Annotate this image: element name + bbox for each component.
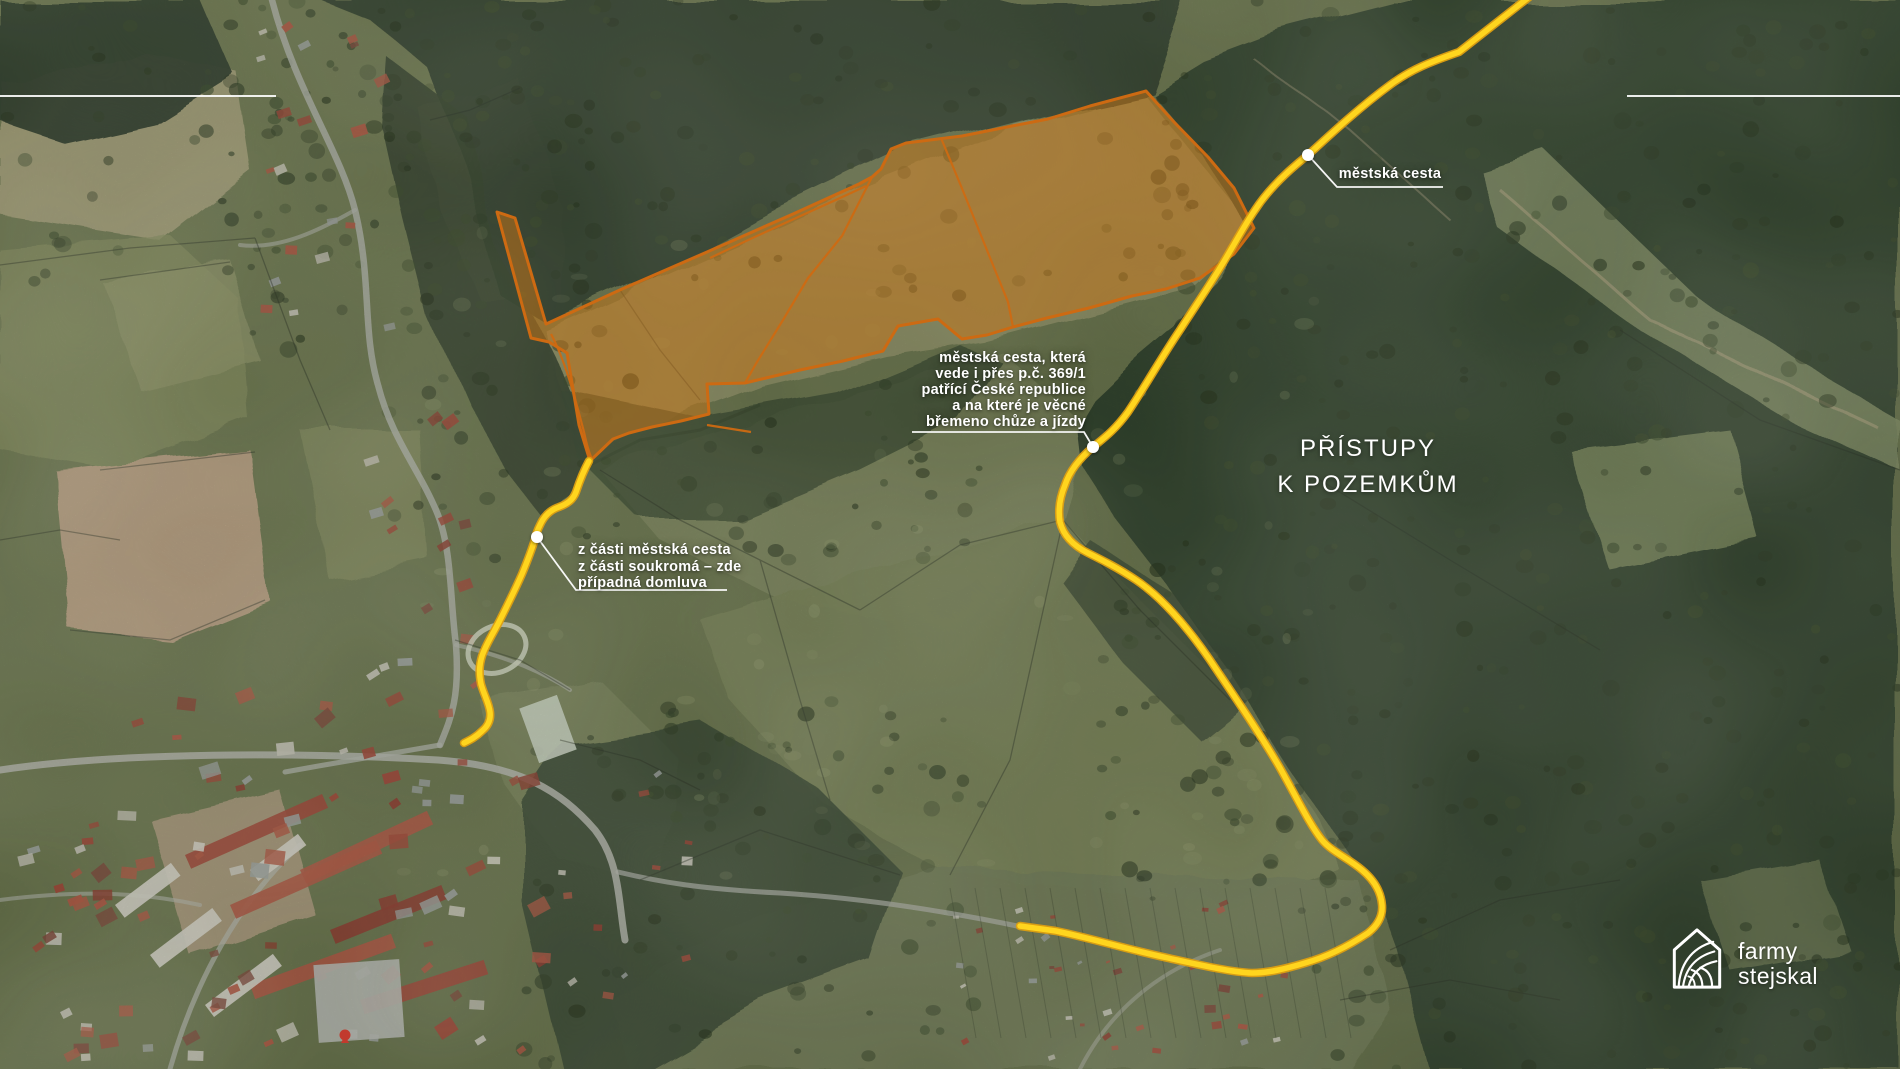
- barn-house-icon: [1670, 924, 1724, 992]
- satellite-map: [0, 0, 1900, 1069]
- easement-note-line: vede i přes p.č. 369/1: [818, 366, 1086, 382]
- page-title: PŘÍSTUPY K POZEMKŮM: [1222, 431, 1514, 503]
- map-poster: městská cesta městská cesta, která vede …: [0, 0, 1900, 1069]
- route-marker-dot: [531, 531, 543, 543]
- logo-word-2: stejskal: [1738, 964, 1818, 989]
- page-title-line1: PŘÍSTUPY: [1222, 431, 1514, 467]
- ownership-note: z části městská cesta z části soukromá –…: [578, 542, 818, 592]
- road-label: městská cesta: [1336, 166, 1444, 182]
- ownership-note-line: případná domluva: [578, 575, 818, 592]
- route-marker-dot: [1302, 149, 1314, 161]
- easement-note: městská cesta, která vede i přes p.č. 36…: [818, 350, 1086, 430]
- easement-note-line: městská cesta, která: [818, 350, 1086, 366]
- easement-note-line: patřící České republice: [818, 382, 1086, 398]
- logo-word-1: farmy: [1738, 939, 1818, 964]
- page-title-line2: K POZEMKŮM: [1222, 467, 1514, 503]
- ownership-note-line: z části městská cesta: [578, 542, 818, 559]
- easement-note-line: a na které je věcné: [818, 398, 1086, 414]
- road-label-text: městská cesta: [1336, 166, 1444, 182]
- farmy-stejskal-logo: farmy stejskal: [1670, 924, 1818, 992]
- logo-wordmark: farmy stejskal: [1738, 939, 1818, 989]
- ownership-note-line: z části soukromá – zde: [578, 559, 818, 576]
- route-marker-dot: [1087, 441, 1099, 453]
- easement-note-line: břemeno chůze a jízdy: [818, 414, 1086, 430]
